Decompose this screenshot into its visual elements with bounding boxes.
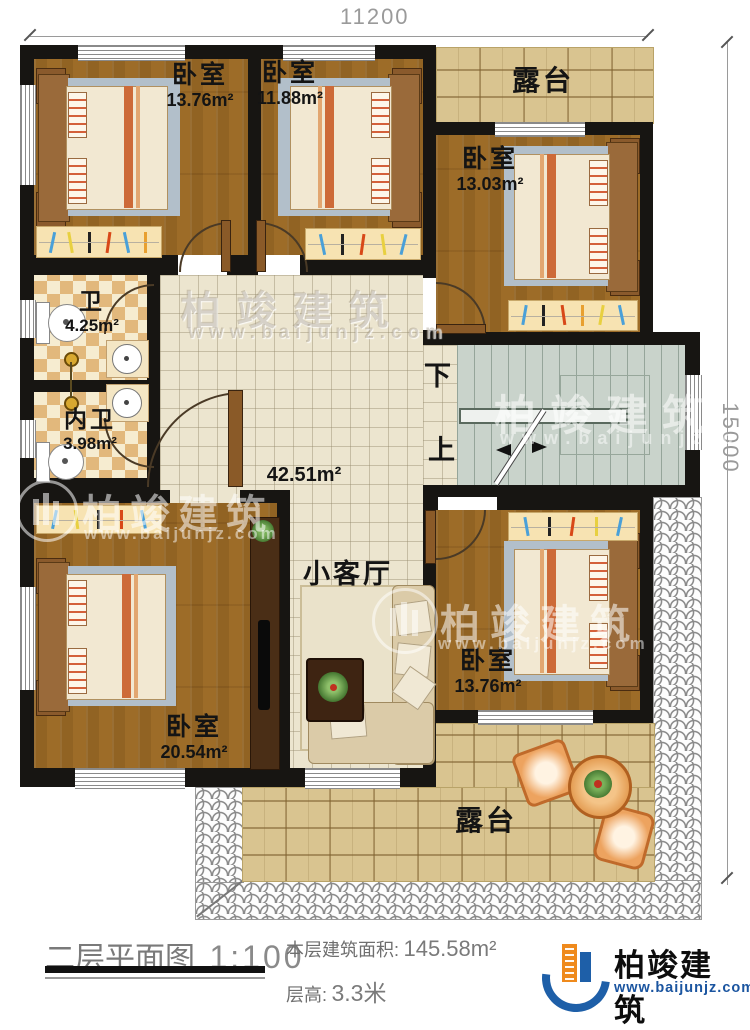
window: [20, 420, 36, 458]
towel-rail: [70, 362, 72, 398]
wall: [290, 768, 305, 787]
room-area: 13.76m²: [426, 676, 550, 698]
room-name: 卧室: [234, 58, 346, 88]
title-underline-thin: [45, 977, 265, 979]
window: [478, 710, 593, 725]
window: [20, 85, 36, 185]
sliding-door: [495, 122, 585, 137]
room-name: 卫: [42, 288, 142, 316]
door-leaf: [256, 220, 266, 272]
wall: [227, 255, 258, 275]
wall: [640, 497, 653, 723]
floor-height-line: 层高: 3.3米: [286, 974, 386, 1008]
floor-height-label: 层高:: [286, 985, 327, 1005]
room-area: 11.88m²: [234, 88, 346, 110]
company-logo: 柏竣建筑 www.baijunjz.com: [540, 938, 745, 1004]
room-area: 13.03m²: [428, 174, 552, 196]
watermark-site: www.baijunjz.com: [438, 634, 649, 654]
wall: [185, 768, 303, 787]
room-name: 内卫: [40, 406, 140, 434]
dimension-line-top: [30, 36, 648, 37]
room-name: 露台: [468, 64, 618, 98]
room-label-bedroom-bottom-left: 卧室 20.54m²: [132, 712, 256, 764]
watermark-site: www.baijunjz.com: [84, 524, 279, 544]
room-label-bathroom: 卫 4.25m²: [42, 288, 142, 336]
room-area: 20.54m²: [132, 742, 256, 764]
door-leaf: [221, 220, 231, 272]
wall: [423, 485, 700, 497]
wall: [497, 497, 653, 510]
stairs-up-label: 上: [422, 434, 464, 466]
floor-area-line: 本层建筑面积: 145.58m²: [286, 936, 496, 962]
bed: [36, 560, 182, 712]
watermark-site: www.baijunjz.com: [188, 322, 448, 344]
logo-building-icon: [562, 944, 577, 982]
wall: [685, 345, 700, 375]
wardrobe: [305, 228, 421, 260]
stairs-up-text: 上: [422, 434, 464, 466]
wall: [436, 122, 495, 135]
room-name: 卧室: [132, 712, 256, 742]
door-leaf: [425, 510, 436, 564]
door-leaf: [228, 390, 243, 487]
floor-height-value: 3.3米: [331, 980, 386, 1006]
sliding-door: [305, 768, 400, 789]
wardrobe: [36, 226, 162, 258]
wardrobe: [508, 512, 638, 541]
wall: [20, 768, 75, 787]
room-label-terrace-top: 露台: [468, 64, 618, 98]
tv: [258, 620, 270, 710]
roof-tiles-right: [653, 497, 702, 883]
room-label-terrace-bottom: 露台: [428, 804, 544, 838]
logo-site-text: www.baijunjz.com: [614, 980, 750, 996]
floor-area-label: 本层建筑面积:: [286, 940, 399, 960]
logo-building-icon: [580, 952, 591, 982]
room-name: 露台: [428, 804, 544, 838]
roof-tiles-left: [195, 787, 244, 883]
room-name: 小客厅: [286, 558, 410, 590]
dimension-top: 11200: [340, 4, 410, 30]
floor-plan-page: { "dimensions": { "top": "11200", "right…: [0, 0, 750, 1009]
room-label-ensuite-bathroom: 内卫 3.98m²: [40, 406, 140, 454]
watermark-logo-icon: [372, 588, 438, 654]
stairs-down-text: 下: [418, 360, 460, 392]
dimension-tick: [642, 29, 655, 42]
room-area: 3.98m²: [40, 434, 140, 454]
dimension-tick: [24, 29, 37, 42]
wardrobe: [508, 300, 638, 331]
wall: [423, 497, 438, 510]
watermark-site: www.baijunjz.com: [500, 428, 750, 449]
wall: [593, 710, 653, 723]
window: [20, 587, 36, 690]
watermark-logo-icon: [16, 480, 78, 542]
room-label-bedroom-top-mid: 卧室 11.88m²: [234, 58, 346, 110]
window: [20, 300, 36, 338]
room-label-bedroom-right: 卧室 13.03m²: [428, 144, 552, 196]
floor-area-value: 145.58m²: [403, 936, 496, 961]
window: [78, 45, 185, 61]
roof-tiles-bottom: [195, 880, 702, 920]
title-underline: [45, 966, 265, 973]
sink: [112, 344, 142, 374]
plant-flower: [594, 780, 602, 788]
plant-flower: [330, 684, 337, 691]
wall: [640, 122, 653, 345]
room-area: 4.25m²: [42, 316, 142, 336]
window: [75, 768, 185, 789]
room-label-living: 小客厅: [286, 558, 410, 590]
room-name: 卧室: [428, 144, 552, 174]
stairs-down-label: 下: [418, 360, 460, 392]
